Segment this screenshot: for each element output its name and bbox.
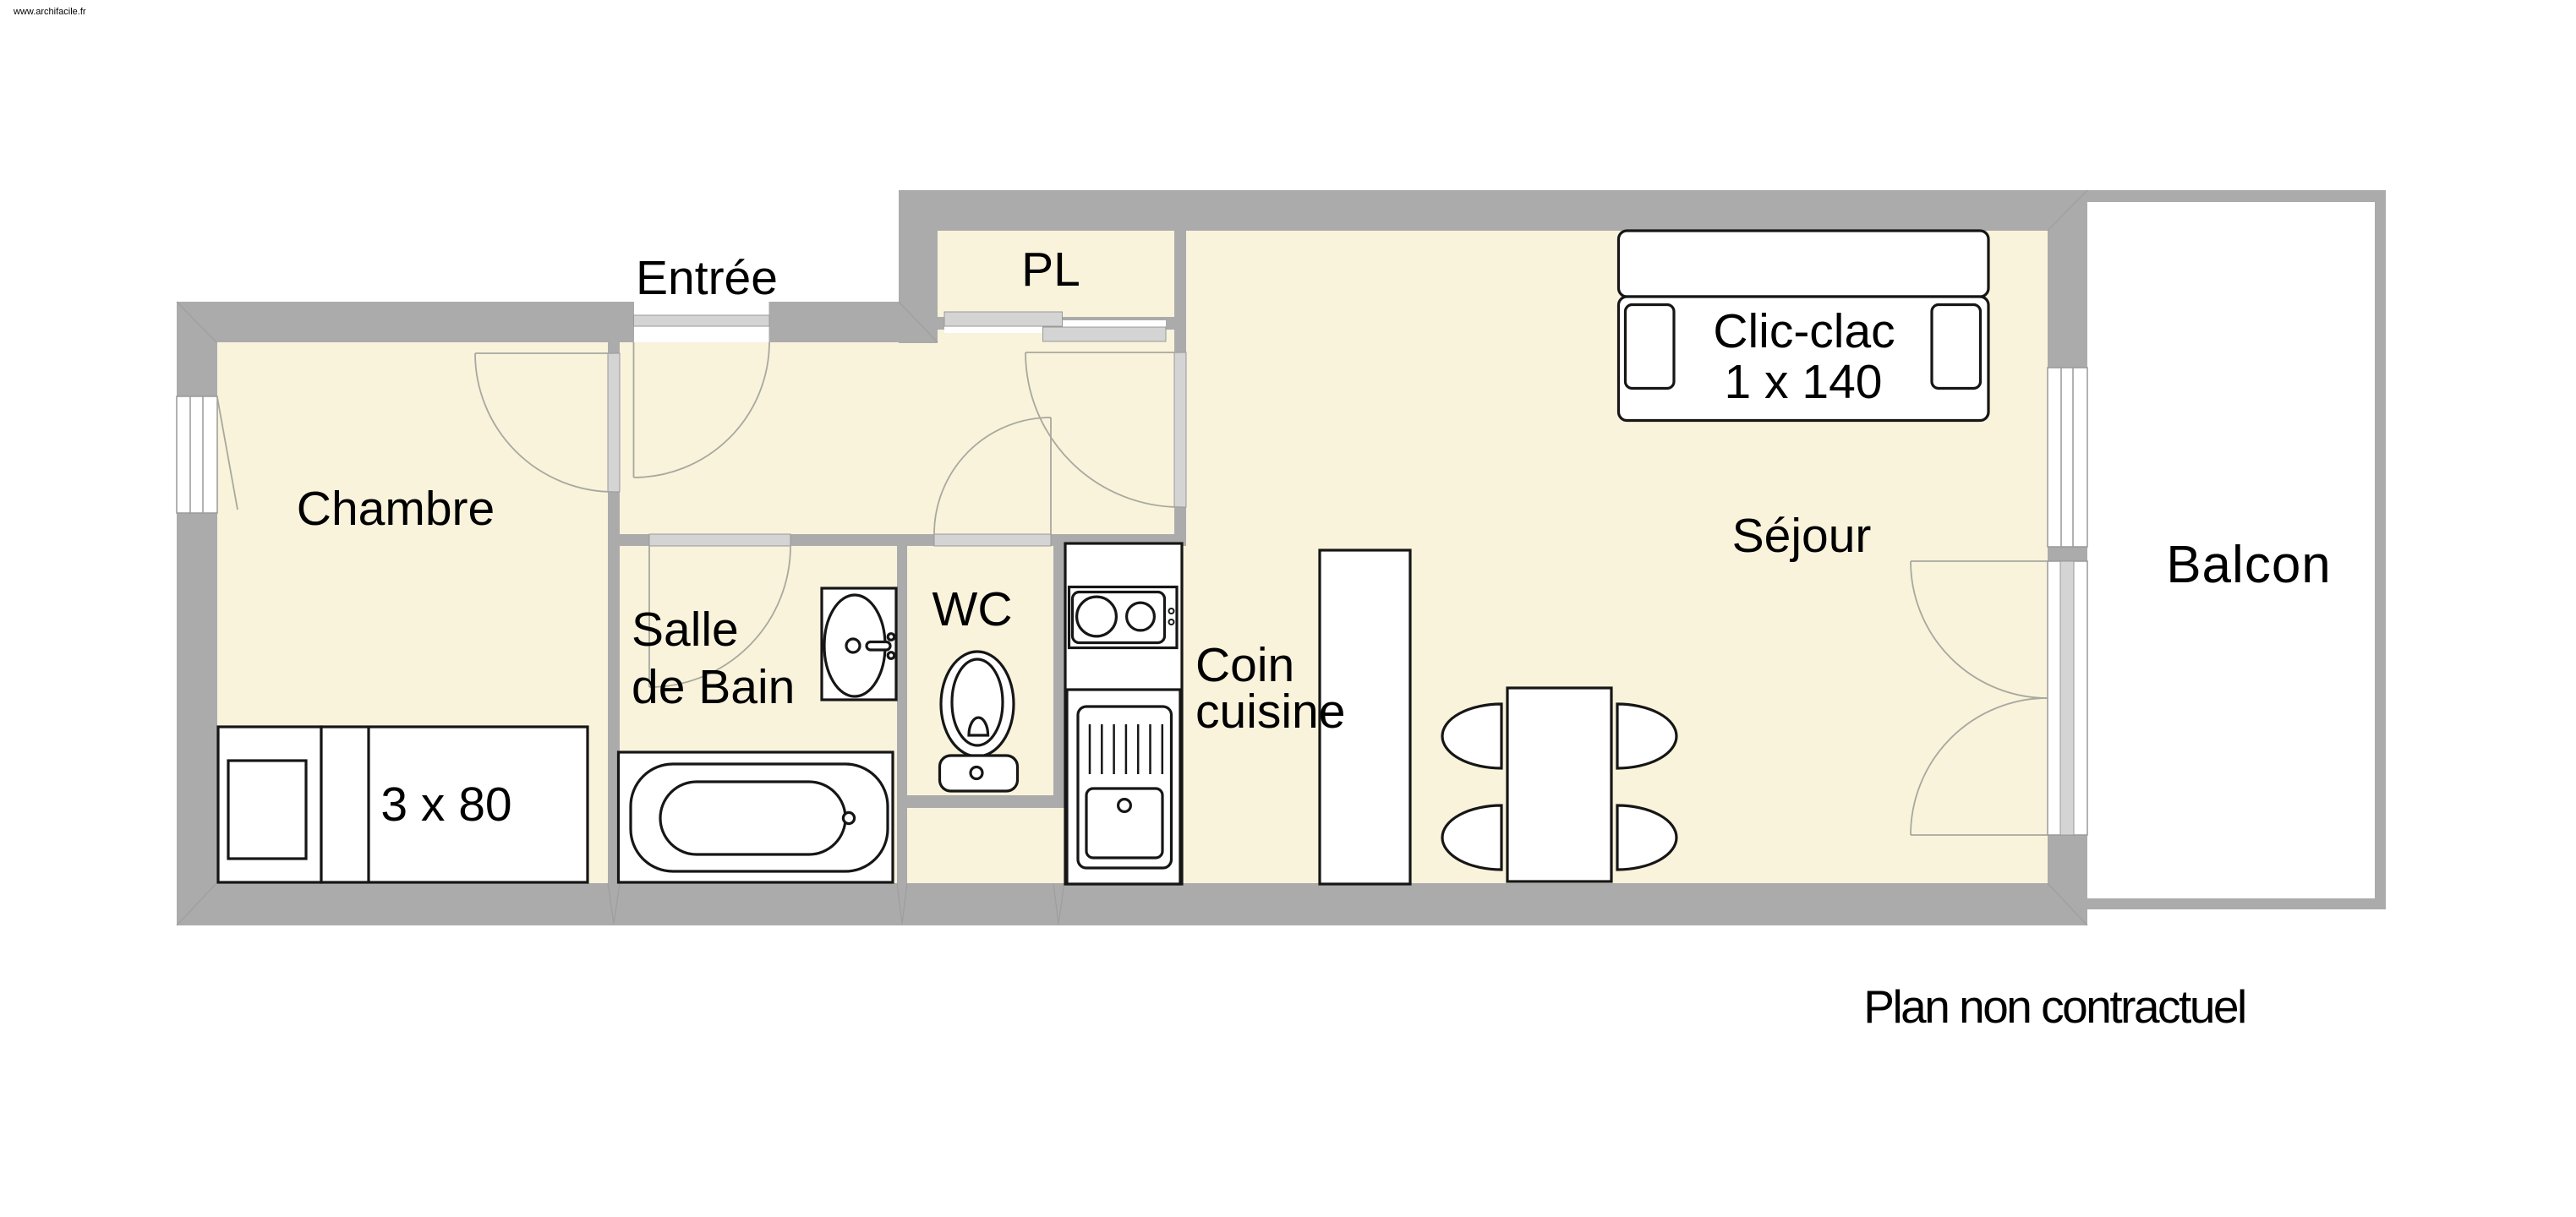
svg-text:WC: WC <box>933 582 1013 636</box>
svg-text:www.archifacile.fr: www.archifacile.fr <box>13 7 86 17</box>
svg-text:Clic-clac: Clic-clac <box>1713 304 1895 358</box>
svg-text:Plan non contractuel: Plan non contractuel <box>1863 980 2245 1033</box>
svg-text:Séjour: Séjour <box>1732 509 1872 563</box>
svg-text:3 x 80: 3 x 80 <box>380 778 511 832</box>
svg-text:Balcon: Balcon <box>2166 536 2332 594</box>
svg-text:PL: PL <box>1021 243 1080 297</box>
svg-text:Entrée: Entrée <box>636 251 778 305</box>
svg-text:Salle: Salle <box>632 603 739 657</box>
svg-text:de Bain: de Bain <box>632 660 795 714</box>
svg-text:cuisine: cuisine <box>1195 685 1345 739</box>
svg-text:Chambre: Chambre <box>297 482 495 536</box>
svg-text:1 x 140: 1 x 140 <box>1725 355 1883 409</box>
